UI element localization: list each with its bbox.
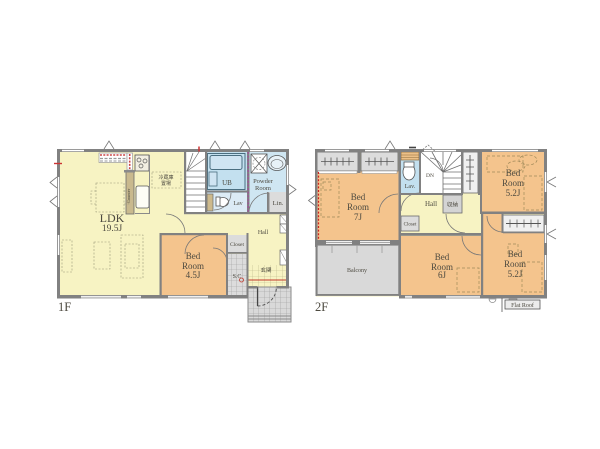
svg-text:Hall: Hall bbox=[425, 200, 437, 208]
svg-text:LDK: LDK bbox=[100, 211, 125, 225]
svg-text:6J: 6J bbox=[438, 270, 447, 280]
svg-text:Lav.: Lav. bbox=[405, 184, 416, 190]
svg-text:Powder: Powder bbox=[253, 178, 274, 185]
svg-text:Room: Room bbox=[504, 259, 526, 269]
svg-text:4.5J: 4.5J bbox=[186, 270, 201, 280]
svg-text:Flat Roof: Flat Roof bbox=[511, 302, 534, 309]
svg-text:Counter: Counter bbox=[126, 188, 131, 203]
svg-text:5.2J: 5.2J bbox=[506, 188, 521, 198]
svg-text:Room: Room bbox=[347, 202, 369, 212]
svg-text:Room: Room bbox=[502, 178, 524, 188]
svg-text:Balcony: Balcony bbox=[347, 268, 367, 274]
svg-text:玄関: 玄関 bbox=[260, 266, 272, 274]
svg-text:1F: 1F bbox=[58, 300, 71, 314]
svg-text:2F: 2F bbox=[315, 300, 328, 314]
svg-text:Bed: Bed bbox=[351, 192, 366, 202]
svg-text:Lav: Lav bbox=[233, 201, 242, 207]
svg-text:19.5J: 19.5J bbox=[102, 224, 123, 234]
svg-text:Hall: Hall bbox=[258, 230, 269, 236]
svg-text:7J: 7J bbox=[354, 212, 363, 222]
svg-text:Bed: Bed bbox=[186, 251, 201, 261]
svg-text:Bed: Bed bbox=[508, 249, 523, 259]
svg-text:5.2J: 5.2J bbox=[508, 269, 523, 279]
svg-text:冷蔵庫: 冷蔵庫 bbox=[158, 174, 173, 181]
svg-text:Lin.: Lin. bbox=[273, 200, 284, 207]
svg-text:収納: 収納 bbox=[447, 201, 459, 209]
svg-text:DN: DN bbox=[426, 173, 434, 179]
svg-text:Closet: Closet bbox=[404, 223, 417, 228]
svg-text:Closet: Closet bbox=[230, 242, 245, 248]
svg-text:置場: 置場 bbox=[161, 180, 171, 187]
svg-text:Bed: Bed bbox=[506, 168, 521, 178]
svg-text:UB: UB bbox=[222, 179, 232, 187]
svg-text:S.C: S.C bbox=[233, 274, 242, 280]
svg-text:Bed: Bed bbox=[435, 252, 450, 262]
svg-text:Room: Room bbox=[255, 185, 271, 192]
